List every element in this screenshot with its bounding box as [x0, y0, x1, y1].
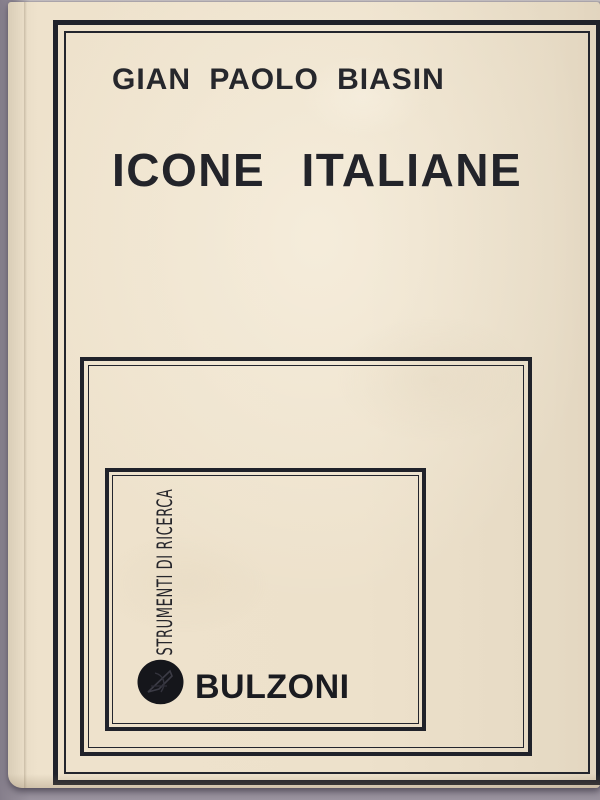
- book-title: ICONE ITALIANE: [112, 143, 522, 197]
- book-cover: GIAN PAOLO BIASIN ICONE ITALIANE STRUMEN…: [8, 2, 600, 788]
- publisher-name: BULZONI: [195, 668, 350, 707]
- publisher-logo-icon: [137, 659, 184, 705]
- author-name: GIAN PAOLO BIASIN: [112, 63, 445, 97]
- series-label: STRUMENTI DI RICERCA: [153, 489, 177, 656]
